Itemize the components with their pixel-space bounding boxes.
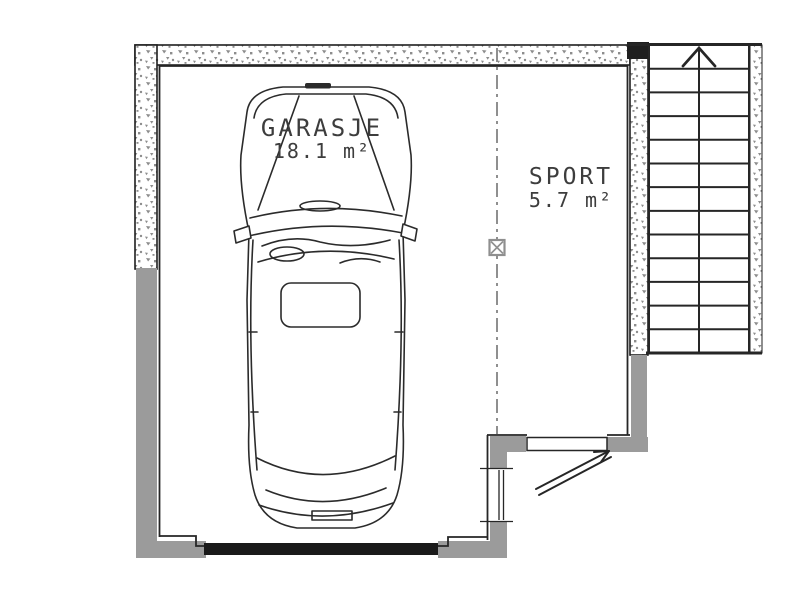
entry-wall-right	[607, 437, 648, 452]
floor-plan-drawing	[0, 0, 790, 600]
wall-left-lower	[136, 268, 157, 558]
room-label-sport: SPORT 5.7 m²	[529, 166, 613, 211]
post-marker	[490, 240, 505, 255]
wall-left-upper	[135, 45, 157, 269]
room-label-garasje: GARASJE 18.1 m²	[261, 117, 383, 162]
wall-right-lower	[631, 355, 647, 450]
door-swing-shaft-1	[536, 451, 609, 489]
wall-top	[135, 45, 630, 65]
wall-stair-right	[750, 45, 762, 353]
entry-door-swing	[536, 451, 611, 495]
garage-door-jamb-lower	[490, 521, 507, 558]
garage-side-door	[480, 469, 513, 522]
room-name-garasje: GARASJE	[261, 117, 383, 140]
entry-door-threshold	[527, 438, 607, 451]
entry-wall-left	[490, 436, 526, 452]
room-area-garasje: 18.1 m²	[261, 140, 383, 162]
wall-stair-left	[630, 45, 648, 355]
room-area-sport: 5.7 m²	[529, 189, 613, 211]
garage-door-jamb-upper	[490, 452, 507, 469]
garage-door	[204, 543, 438, 555]
room-name-sport: SPORT	[529, 166, 613, 189]
car-front-badge	[305, 83, 331, 89]
divider	[490, 48, 505, 434]
door-swing-shaft-2	[539, 457, 611, 495]
floor-plan: GARASJE 18.1 m² SPORT 5.7 m²	[0, 0, 790, 600]
